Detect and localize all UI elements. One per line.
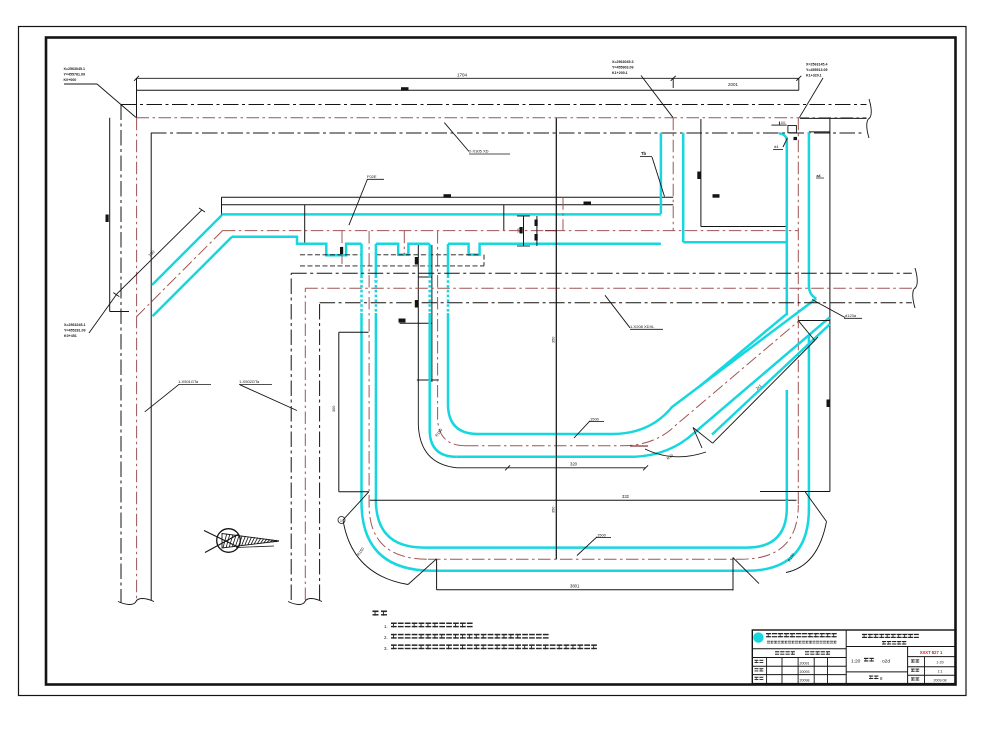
svg-text:Y=455903.09: Y=455903.09 [612,66,633,70]
svg-text:K1+200.1: K1+200.1 [612,71,628,75]
svg-text:1704: 1704 [457,73,468,78]
svg-text:3.: 3. [384,646,388,651]
svg-text:R150: R150 [787,553,795,563]
svg-text:X=2563245.1: X=2563245.1 [64,323,85,327]
svg-text:Y=455281.09: Y=455281.09 [64,329,85,333]
svg-text:2-X305 XD: 2-X305 XD [469,149,489,154]
svg-text:X=2563145.4: X=2563145.4 [806,63,827,67]
svg-text:XXXT 827 1: XXXT 827 1 [920,650,943,655]
svg-text:2001: 2001 [728,82,739,87]
svg-text:1500: 1500 [590,417,600,422]
svg-text:350: 350 [552,507,556,513]
svg-text:K0+451: K0+451 [64,334,77,338]
svg-text:101: 101 [781,121,787,125]
svg-text:1-20: 1-20 [936,661,943,665]
svg-text:2009.08: 2009.08 [934,679,947,683]
svg-text:a4: a4 [817,174,821,178]
svg-text:20091: 20091 [800,662,810,666]
svg-text:20093: 20093 [800,670,810,674]
svg-text:1-X208 XDXL: 1-X208 XDXL [630,324,655,329]
svg-text:R150: R150 [357,547,365,557]
svg-text:1:20: 1:20 [851,659,861,665]
svg-text:F02E: F02E [367,174,377,179]
svg-text:300: 300 [332,406,336,412]
svg-text:1: 1 [340,519,342,523]
svg-text:1.: 1. [384,624,388,629]
svg-text:o2d: o2d [882,659,890,665]
svg-text:3.5: 3.5 [517,228,521,233]
svg-text:X=2563045.3: X=2563045.3 [612,60,633,64]
svg-text:K1+320.1: K1+320.1 [806,74,822,78]
svg-text:8: 8 [880,676,883,681]
svg-text:d123a: d123a [845,313,857,318]
svg-text:X=2563045.1: X=2563045.1 [64,67,85,71]
svg-text:332: 332 [622,494,630,499]
svg-text:1500: 1500 [597,533,607,538]
svg-text:320: 320 [570,462,578,467]
svg-text:Y=455781.09: Y=455781.09 [64,73,85,77]
svg-text:350: 350 [552,337,556,343]
svg-text:1-X501GTa: 1-X501GTa [178,379,199,384]
svg-text:2.: 2. [384,635,388,640]
svg-text:d4: d4 [774,144,779,149]
svg-text:K0+000: K0+000 [64,78,77,82]
svg-text:1-X502GTa: 1-X502GTa [239,379,260,384]
svg-text:1:1: 1:1 [938,670,943,674]
svg-text:Tb: Tb [641,151,647,156]
svg-text:3801: 3801 [570,584,580,589]
svg-text:Y=455913.09: Y=455913.09 [806,68,827,72]
svg-text:20098: 20098 [800,678,810,682]
